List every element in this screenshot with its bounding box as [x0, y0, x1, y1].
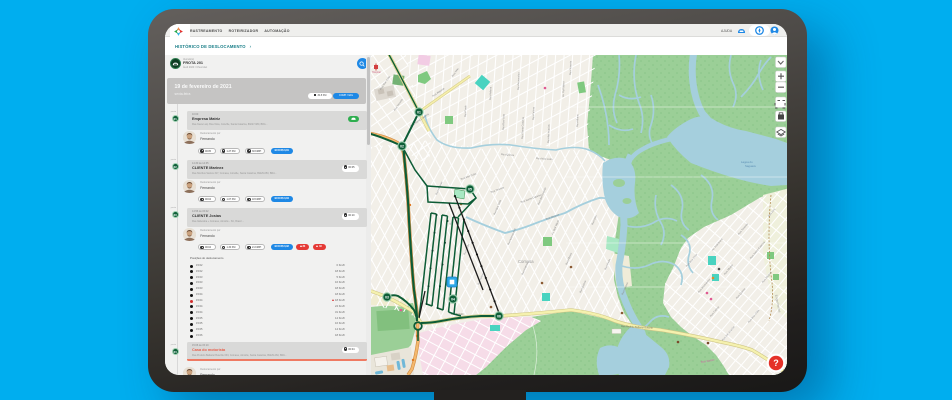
svg-text:Rua Helena: Rua Helena	[489, 86, 492, 100]
svg-text:Rua Monsenhor: Rua Monsenhor	[517, 72, 521, 90]
svg-text:Saguacu: Saguacu	[745, 164, 756, 168]
svg-text:06: 06	[497, 314, 501, 318]
svg-text:01: 01	[417, 110, 421, 114]
svg-text:Rua Tenente: Rua Tenente	[569, 60, 573, 75]
svg-text:04: 04	[451, 297, 455, 301]
svg-text:03: 03	[385, 295, 389, 299]
svg-text:05: 05	[468, 187, 472, 191]
svg-text:Rua Paulo: Rua Paulo	[464, 105, 467, 117]
svg-text:Rua Fatima: Rua Fatima	[532, 106, 535, 120]
svg-text:Av. Rolf Wiest: Av. Rolf Wiest	[562, 81, 566, 97]
svg-text:Hospital: Hospital	[372, 71, 381, 74]
svg-text:?: ?	[773, 358, 779, 368]
svg-text:Rua Albano: Rua Albano	[576, 113, 579, 127]
svg-text:02: 02	[400, 144, 404, 148]
svg-text:Rua Boa Vista: Rua Boa Vista	[502, 113, 506, 130]
